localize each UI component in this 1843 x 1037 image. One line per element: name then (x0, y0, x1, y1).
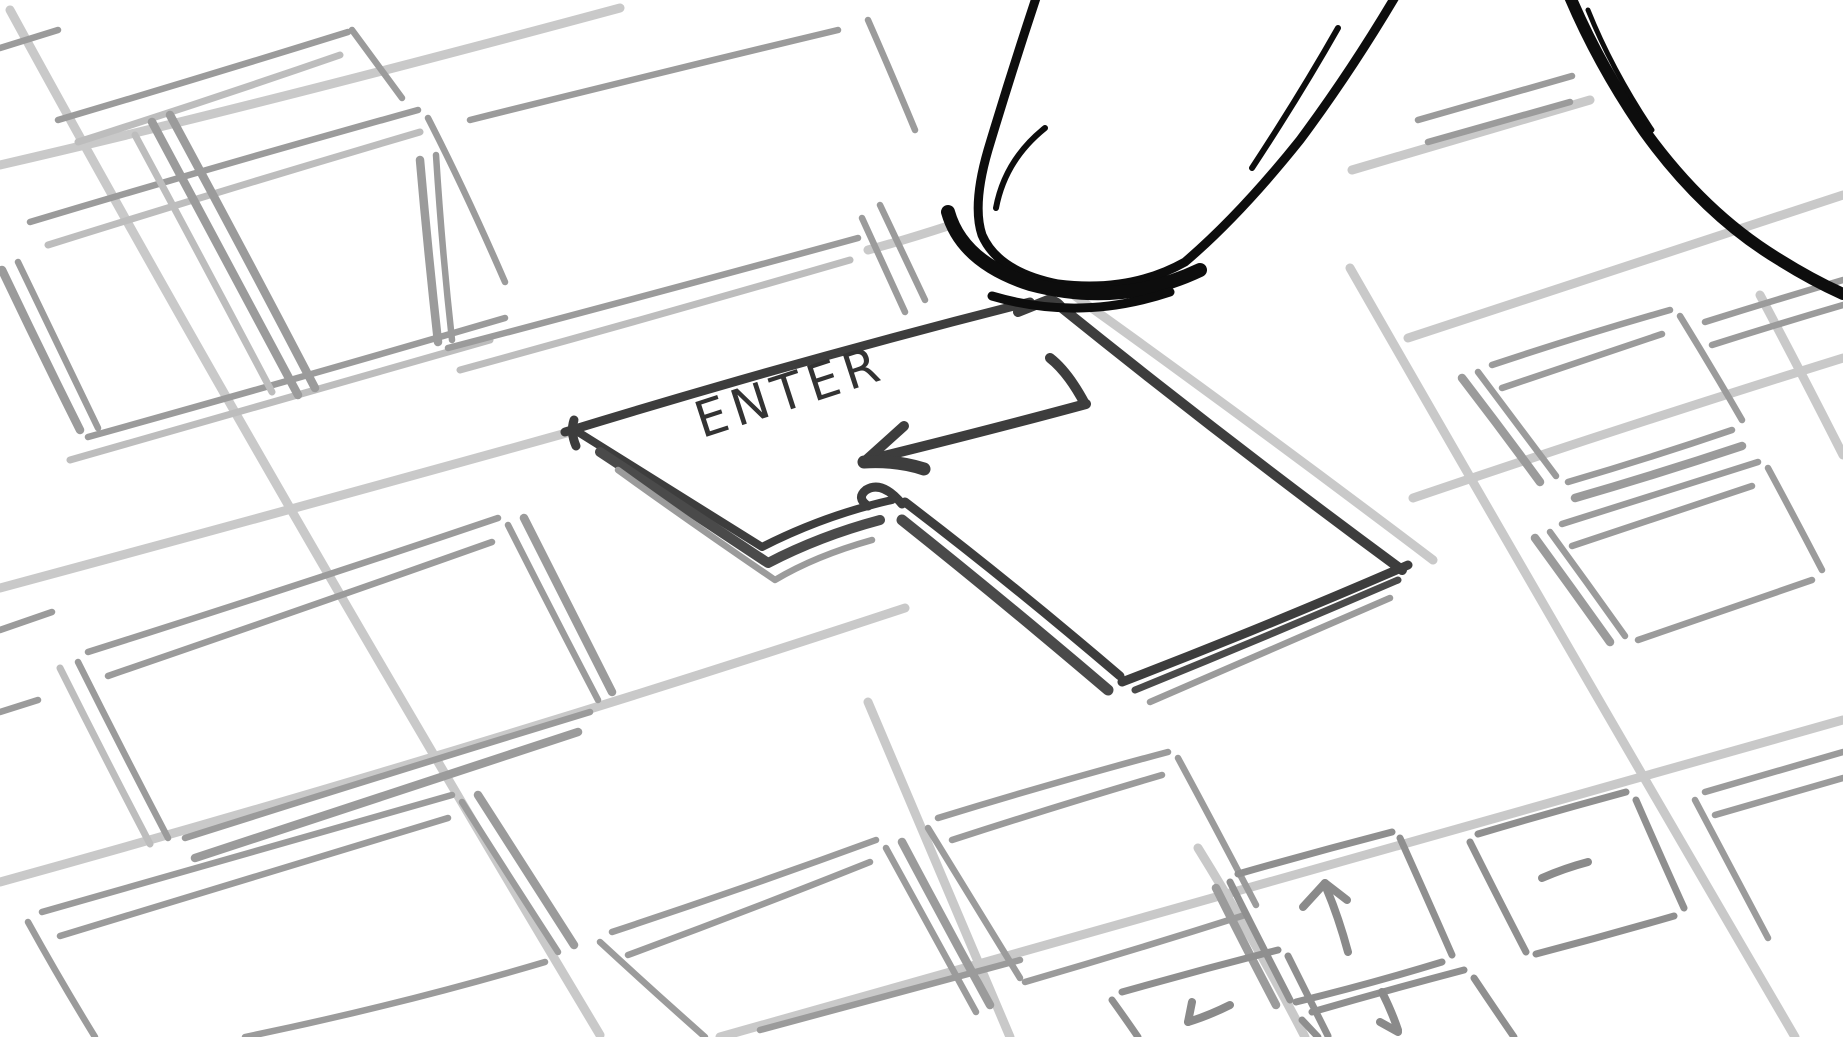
arrow-key-down (1302, 970, 1514, 1037)
up-arrow-icon (1303, 883, 1348, 952)
keyboard-key-sketch (0, 20, 1843, 1037)
return-arrow-icon (864, 358, 1086, 469)
keyboard-illustration: ENTER (0, 0, 1843, 1037)
hand (1568, 0, 1843, 294)
finger (948, 0, 1398, 308)
left-arrow-icon (1188, 1002, 1230, 1022)
hand-fill (1568, 0, 1843, 292)
enter-key-label: ENTER (688, 334, 892, 450)
enter-key: ENTER (565, 296, 1433, 702)
fingernail-line (996, 128, 1045, 208)
dash-icon (1542, 862, 1588, 878)
illustration-canvas: ENTER (0, 0, 1843, 1037)
arrow-key-cluster (1112, 792, 1684, 1037)
down-arrow-icon (1380, 992, 1398, 1032)
finger-fill (978, 0, 1398, 286)
